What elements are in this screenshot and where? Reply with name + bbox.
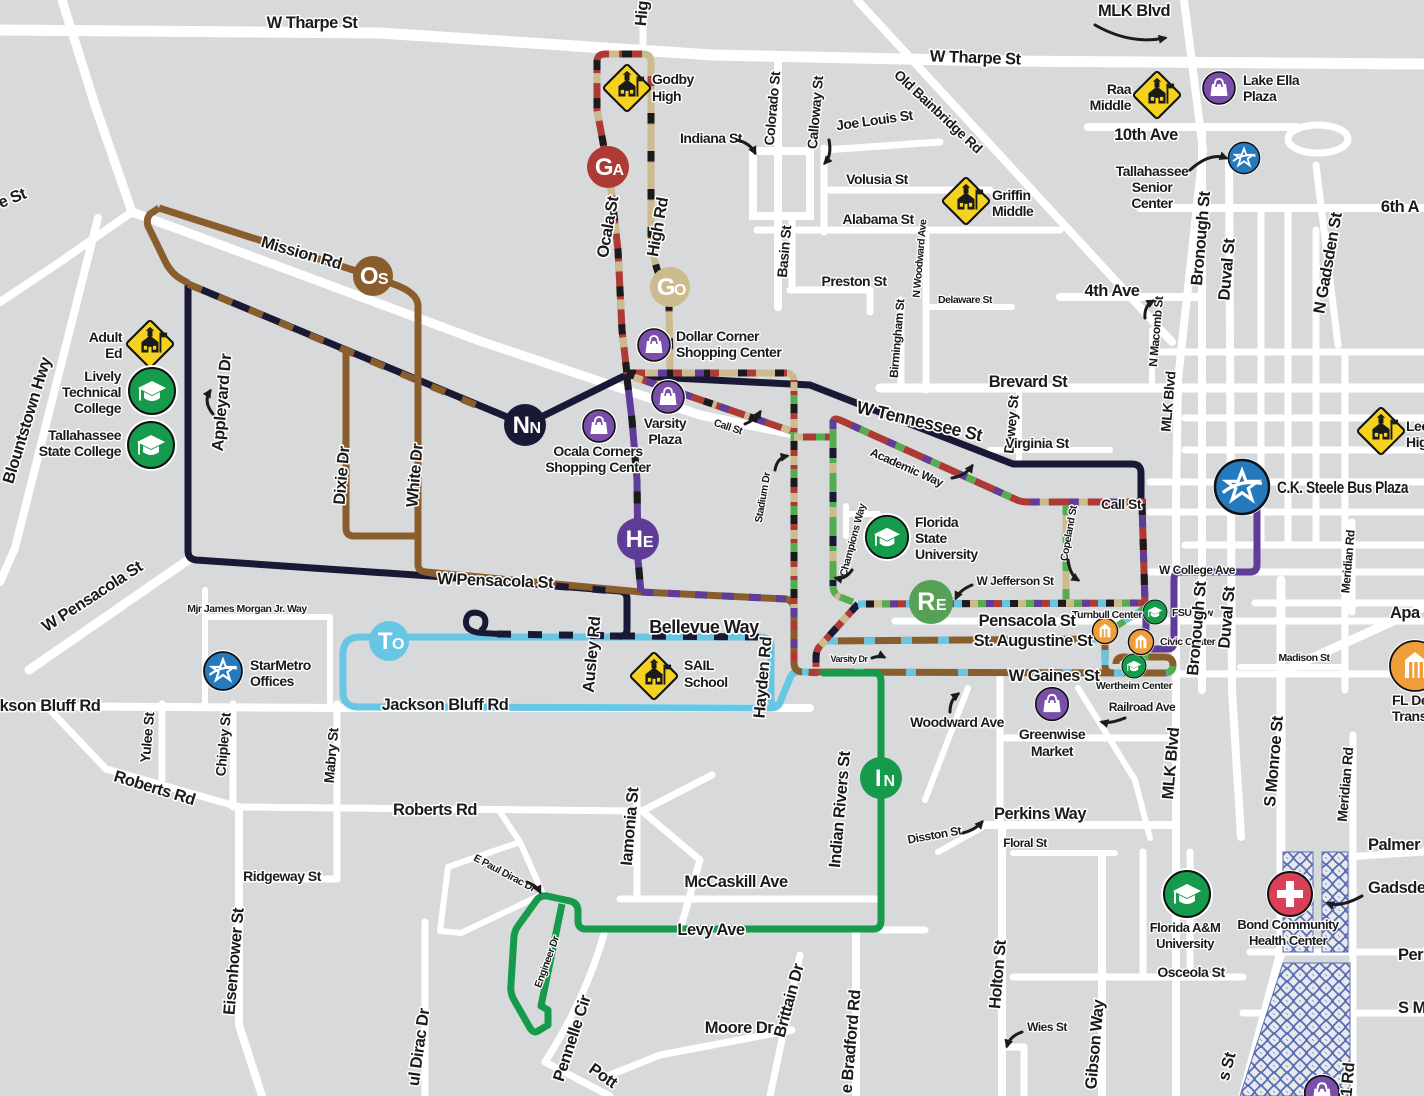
svg-text:Middle: Middle	[1090, 97, 1132, 113]
svg-text:Tallahassee: Tallahassee	[1116, 163, 1190, 179]
svg-text:Madison St: Madison St	[1278, 652, 1330, 664]
svg-text:kson Bluff Rd: kson Bluff Rd	[0, 697, 100, 715]
svg-text:Brevard St: Brevard St	[989, 373, 1068, 391]
svg-text:Varsity Dr: Varsity Dr	[830, 654, 868, 664]
svg-text:Levy Ave: Levy Ave	[677, 921, 745, 939]
svg-text:Apa: Apa	[1390, 604, 1421, 622]
svg-text:Call St: Call St	[1101, 496, 1142, 512]
svg-text:StarMetro: StarMetro	[250, 657, 311, 673]
svg-text:Perkins Way: Perkins Way	[994, 805, 1087, 823]
svg-text:High: High	[652, 88, 681, 104]
svg-text:1 Rd: 1 Rd	[1338, 1062, 1359, 1096]
svg-text:Floral St: Floral St	[1003, 836, 1047, 850]
svg-text:Health Center: Health Center	[1249, 933, 1327, 948]
svg-text:Griffin: Griffin	[992, 187, 1031, 203]
svg-text:Raa: Raa	[1107, 81, 1132, 97]
svg-text:McCaskill Ave: McCaskill Ave	[684, 873, 788, 891]
svg-text:Florida: Florida	[915, 514, 959, 530]
svg-text:4th Ave: 4th Ave	[1085, 282, 1140, 300]
svg-text:Adult: Adult	[89, 329, 123, 345]
svg-text:Offices: Offices	[250, 673, 295, 689]
svg-text:Lively: Lively	[84, 368, 121, 384]
svg-text:State: State	[915, 530, 947, 546]
svg-text:Jackson Bluff Rd: Jackson Bluff Rd	[382, 696, 509, 714]
svg-text:10th Ave: 10th Ave	[1114, 126, 1178, 144]
svg-text:Palmer A: Palmer A	[1368, 836, 1424, 854]
svg-text:Plaza: Plaza	[1243, 88, 1277, 104]
svg-text:Shopping Center: Shopping Center	[545, 459, 651, 475]
svg-text:W Tharpe St: W Tharpe St	[267, 14, 359, 32]
svg-text:Middle: Middle	[992, 203, 1034, 219]
svg-text:Technical: Technical	[62, 384, 121, 400]
svg-text:Lake Ella: Lake Ella	[1243, 72, 1300, 88]
svg-text:Mjr James Morgan Jr. Way: Mjr James Morgan Jr. Way	[187, 603, 307, 615]
svg-text:Plaza: Plaza	[648, 431, 682, 447]
svg-text:Tallahassee: Tallahassee	[48, 427, 122, 443]
svg-text:E: E	[936, 597, 947, 614]
svg-text:N: N	[529, 420, 540, 437]
svg-text:MLK Blvd: MLK Blvd	[1098, 2, 1170, 20]
svg-text:Delaware St: Delaware St	[938, 294, 993, 306]
svg-text:High: High	[1406, 434, 1424, 450]
svg-text:T: T	[378, 628, 393, 655]
svg-text:Turnbull Center: Turnbull Center	[1072, 609, 1142, 621]
svg-text:Greenwise: Greenwise	[1019, 726, 1086, 742]
svg-text:Bellevue Way: Bellevue Way	[649, 617, 759, 637]
svg-text:A: A	[612, 162, 624, 179]
svg-text:Virginia St: Virginia St	[1005, 435, 1069, 451]
svg-text:FL Dep: FL Dep	[1392, 692, 1424, 708]
svg-text:College: College	[74, 400, 122, 416]
svg-text:Ed: Ed	[105, 345, 122, 361]
svg-text:W Jefferson St: W Jefferson St	[976, 574, 1054, 588]
svg-text:Wies St: Wies St	[1027, 1020, 1067, 1034]
svg-text:Center: Center	[1131, 195, 1173, 211]
svg-text:Preston St: Preston St	[821, 273, 887, 289]
svg-text:Bond Community: Bond Community	[1237, 917, 1340, 932]
svg-text:Pensacola St: Pensacola St	[979, 612, 1077, 630]
svg-text:S: S	[378, 271, 389, 288]
svg-text:H: H	[626, 526, 643, 553]
svg-text:School: School	[684, 674, 728, 690]
svg-text:W Gaines St: W Gaines St	[1009, 667, 1101, 685]
svg-text:6th A: 6th A	[1381, 198, 1420, 216]
svg-text:Moore Dr: Moore Dr	[705, 1019, 775, 1037]
svg-text:Ocala Corners: Ocala Corners	[553, 443, 643, 459]
svg-text:C.K. Steele Bus Plaza: C.K. Steele Bus Plaza	[1277, 479, 1409, 497]
svg-text:Ridgeway St: Ridgeway St	[243, 868, 322, 884]
svg-text:G: G	[595, 154, 613, 181]
svg-text:Woodward Ave: Woodward Ave	[910, 714, 1005, 730]
svg-text:Transp: Transp	[1392, 708, 1424, 724]
svg-text:Volusia St: Volusia St	[846, 171, 908, 187]
svg-text:N: N	[883, 773, 894, 790]
svg-text:N: N	[513, 412, 530, 439]
svg-text:W College Ave: W College Ave	[1159, 563, 1236, 577]
svg-text:Senior: Senior	[1132, 179, 1174, 195]
svg-text:SAIL: SAIL	[684, 657, 715, 673]
svg-text:University: University	[1156, 936, 1215, 951]
svg-text:Wertheim Center: Wertheim Center	[1096, 680, 1173, 692]
svg-text:Florida A&M: Florida A&M	[1150, 920, 1221, 935]
svg-text:Indiana St: Indiana St	[680, 130, 743, 146]
svg-text:Shopping Center: Shopping Center	[676, 344, 782, 360]
svg-text:Osceola St: Osceola St	[1157, 964, 1225, 980]
svg-text:Market: Market	[1031, 743, 1074, 759]
svg-text:Railroad Ave: Railroad Ave	[1109, 700, 1176, 714]
svg-text:State College: State College	[39, 443, 122, 459]
svg-text:Alabama St: Alabama St	[842, 211, 914, 227]
svg-text:O: O	[674, 282, 686, 299]
svg-text:O: O	[360, 263, 378, 290]
svg-text:St. Augustine St: St. Augustine St	[974, 632, 1094, 650]
svg-text:Perkins: Perkins	[1398, 946, 1424, 964]
svg-text:O: O	[392, 636, 404, 653]
svg-text:W Tharpe St: W Tharpe St	[930, 47, 1022, 68]
svg-text:E: E	[643, 534, 654, 551]
svg-text:G: G	[657, 274, 675, 301]
svg-text:S Ma: S Ma	[1398, 999, 1424, 1017]
svg-text:Dollar Corner: Dollar Corner	[676, 328, 760, 344]
svg-text:Godby: Godby	[652, 71, 695, 87]
svg-text:Roberts Rd: Roberts Rd	[393, 801, 477, 819]
svg-text:Leon: Leon	[1406, 418, 1424, 434]
svg-text:Hig: Hig	[632, 0, 652, 27]
svg-text:University: University	[915, 546, 978, 562]
svg-text:Gadsden: Gadsden	[1368, 879, 1424, 897]
svg-text:Varsity: Varsity	[644, 415, 687, 431]
svg-text:I: I	[875, 765, 881, 792]
svg-text:R: R	[917, 588, 935, 616]
